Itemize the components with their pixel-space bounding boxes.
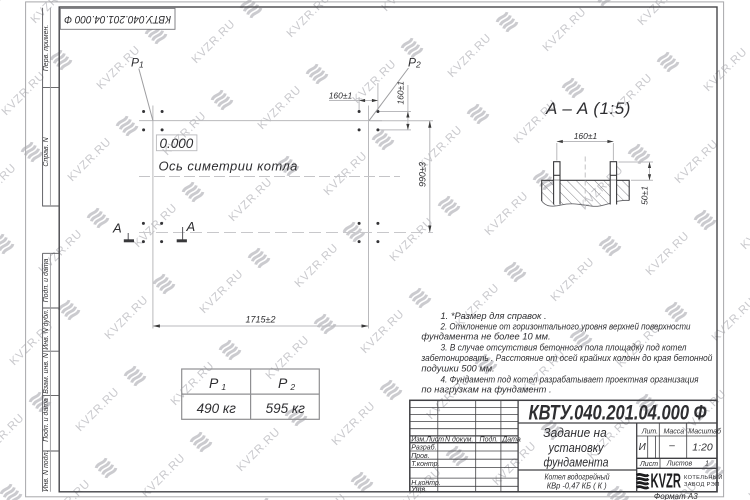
svg-text:KVZR.RU: KVZR.RU bbox=[140, 452, 188, 500]
svg-text:KVZR.RU: KVZR.RU bbox=[264, 334, 312, 382]
svg-text:Инв. N подл.: Инв. N подл. bbox=[42, 450, 50, 491]
svg-text:установку: установку bbox=[548, 440, 605, 455]
svg-text:Лист: Лист bbox=[639, 461, 658, 468]
svg-text:0.000: 0.000 bbox=[160, 136, 194, 151]
svg-text:КВТУ.040.201.04.000 Ф: КВТУ.040.201.04.000 Ф bbox=[64, 13, 171, 25]
svg-text:3. В случае отсутствия бетонн: 3. В случае отсутствия бетонного пола пл… bbox=[441, 343, 688, 353]
svg-text:1715±2: 1715±2 bbox=[246, 315, 276, 325]
svg-text:Изм.Лист: Изм.Лист bbox=[411, 436, 444, 443]
svg-text:KVZR.RU: KVZR.RU bbox=[483, 190, 531, 238]
svg-text:Разраб.: Разраб. bbox=[411, 444, 436, 452]
svg-text:160±1: 160±1 bbox=[574, 131, 598, 141]
svg-text:1. *Размер для справок .: 1. *Размер для справок . bbox=[441, 311, 547, 321]
svg-text:KVZR.RU: KVZR.RU bbox=[74, 386, 122, 434]
svg-text:KVZR.RU: KVZR.RU bbox=[636, 0, 684, 28]
svg-text:KVZR.RU: KVZR.RU bbox=[301, 492, 349, 500]
svg-text:Дата: Дата bbox=[501, 436, 521, 443]
svg-text:KVZR.RU: KVZR.RU bbox=[541, 6, 589, 54]
svg-text:160±1: 160±1 bbox=[329, 91, 353, 101]
svg-text:Подп.: Подп. bbox=[480, 435, 499, 443]
svg-text:Ось симетрии котла: Ось симетрии котла bbox=[159, 159, 298, 174]
svg-text:KVZR.RU: KVZR.RU bbox=[702, 46, 750, 94]
svg-text:Листов: Листов bbox=[666, 461, 693, 468]
svg-text:KVZR.RU: KVZR.RU bbox=[549, 256, 597, 304]
svg-text:KVZR.RU: KVZR.RU bbox=[198, 268, 246, 316]
svg-text:KVZR.RU: KVZR.RU bbox=[731, 0, 750, 2]
svg-text:фундамента: фундамента bbox=[544, 455, 609, 470]
svg-text:P2: P2 bbox=[278, 375, 295, 392]
svg-text:A: A bbox=[112, 221, 122, 236]
svg-text:P1: P1 bbox=[131, 56, 144, 70]
svg-text:490 кг: 490 кг bbox=[197, 401, 237, 416]
svg-text:990±3: 990±3 bbox=[418, 162, 428, 187]
svg-text:Формат А3: Формат А3 bbox=[654, 492, 698, 500]
svg-text:1: 1 bbox=[705, 461, 709, 468]
svg-text:Масштаб: Масштаб bbox=[688, 427, 722, 435]
svg-text:KVZR.RU: KVZR.RU bbox=[359, 308, 407, 356]
svg-text:KVZR.RU: KVZR.RU bbox=[739, 204, 750, 252]
svg-text:KVZR.RU: KVZR.RU bbox=[0, 412, 27, 460]
svg-text:KVZR.RU: KVZR.RU bbox=[103, 294, 151, 342]
svg-text:KVZR.RU: KVZR.RU bbox=[710, 296, 750, 344]
svg-text:–: – bbox=[669, 441, 675, 452]
svg-text:KVZR.RU: KVZR.RU bbox=[673, 138, 721, 186]
svg-text:P1: P1 bbox=[209, 375, 226, 392]
svg-text:1:20: 1:20 bbox=[692, 442, 713, 454]
svg-text:KVZR.RU: KVZR.RU bbox=[322, 150, 370, 198]
svg-text:P2: P2 bbox=[408, 56, 421, 70]
svg-text:KVZR.RU: KVZR.RU bbox=[256, 84, 304, 132]
svg-text:50±1: 50±1 bbox=[640, 186, 650, 205]
svg-text:Справ. N: Справ. N bbox=[43, 136, 50, 166]
svg-text:Подп. и дата: Подп. и дата bbox=[42, 258, 50, 302]
svg-text:4. Фундамент под котел разраб: 4. Фундамент под котел разрабатывает про… bbox=[441, 375, 699, 385]
svg-text:KVZR.RU: KVZR.RU bbox=[66, 136, 114, 184]
svg-text:A: A bbox=[186, 219, 196, 234]
svg-text:KVZR.RU: KVZR.RU bbox=[446, 32, 494, 80]
svg-text:595 кг: 595 кг bbox=[266, 401, 306, 416]
svg-text:Т.контр.: Т.контр. bbox=[411, 461, 439, 468]
svg-text:Задание на: Задание на bbox=[543, 425, 607, 440]
svg-text:KVZR.RU: KVZR.RU bbox=[227, 176, 275, 224]
svg-text:Инв. N дубл.: Инв. N дубл. bbox=[42, 309, 50, 350]
svg-text:2. Отклонение от горизонтальн: 2. Отклонение от горизонтального уровня … bbox=[440, 322, 691, 332]
svg-text:160±1: 160±1 bbox=[396, 81, 406, 105]
svg-text:КВр -0,47 КБ ( К ): КВр -0,47 КБ ( К ) bbox=[547, 482, 607, 491]
svg-text:KVZR.RU: KVZR.RU bbox=[132, 202, 180, 250]
svg-text:KVZR.RU: KVZR.RU bbox=[491, 440, 539, 488]
svg-text:по нагрузкам на фундамент .: по нагрузкам на фундамент . bbox=[421, 385, 551, 395]
svg-text:KVZR: KVZR bbox=[651, 470, 682, 493]
svg-text:Пров.: Пров. bbox=[411, 453, 430, 460]
svg-text:забетонировать . Расстояние от: забетонировать . Расстояние от осей край… bbox=[421, 353, 713, 363]
svg-text:Масса: Масса bbox=[664, 428, 685, 435]
svg-text:KVZR.RU: KVZR.RU bbox=[351, 58, 399, 106]
svg-text:КВТУ.040.201.04.000 Ф: КВТУ.040.201.04.000 Ф bbox=[529, 402, 707, 425]
svg-text:КОТЕЛЬНЫЙ: КОТЕЛЬНЫЙ bbox=[684, 473, 723, 481]
svg-text:Подп. и дата: Подп. и дата bbox=[42, 398, 50, 442]
svg-text:Утв.: Утв. bbox=[410, 486, 427, 493]
svg-text:KVZR.RU: KVZR.RU bbox=[330, 400, 378, 448]
svg-text:подушки 500 мм.: подушки 500 мм. bbox=[421, 364, 494, 374]
svg-text:ЗАВОД РЭП: ЗАВОД РЭП bbox=[684, 482, 720, 488]
svg-text:Лит.: Лит. bbox=[641, 428, 658, 435]
svg-text:KVZR.RU: KVZR.RU bbox=[285, 0, 333, 40]
svg-text:KVZR.RU: KVZR.RU bbox=[644, 230, 692, 278]
svg-text:N докум.: N докум. bbox=[445, 435, 473, 443]
svg-text:A – A (1:5): A – A (1:5) bbox=[545, 99, 631, 118]
svg-text:KVZR.RU: KVZR.RU bbox=[190, 18, 238, 66]
svg-text:Взам. инв. N: Взам. инв. N bbox=[43, 352, 50, 394]
svg-text:И: И bbox=[639, 442, 647, 453]
svg-text:KVZR.RU: KVZR.RU bbox=[235, 426, 283, 474]
svg-text:Перв. примен.: Перв. примен. bbox=[43, 25, 50, 72]
svg-text:Котел водогрейный: Котел водогрейный bbox=[545, 472, 610, 481]
svg-text:KVZR.RU: KVZR.RU bbox=[293, 242, 341, 290]
svg-text:KVZR.RU: KVZR.RU bbox=[388, 216, 436, 264]
svg-text:фундамента не более 10 мм.: фундамента не более 10 мм. bbox=[421, 332, 550, 342]
svg-text:KVZR.RU: KVZR.RU bbox=[0, 70, 48, 118]
svg-text:KVZR.RU: KVZR.RU bbox=[0, 162, 19, 210]
